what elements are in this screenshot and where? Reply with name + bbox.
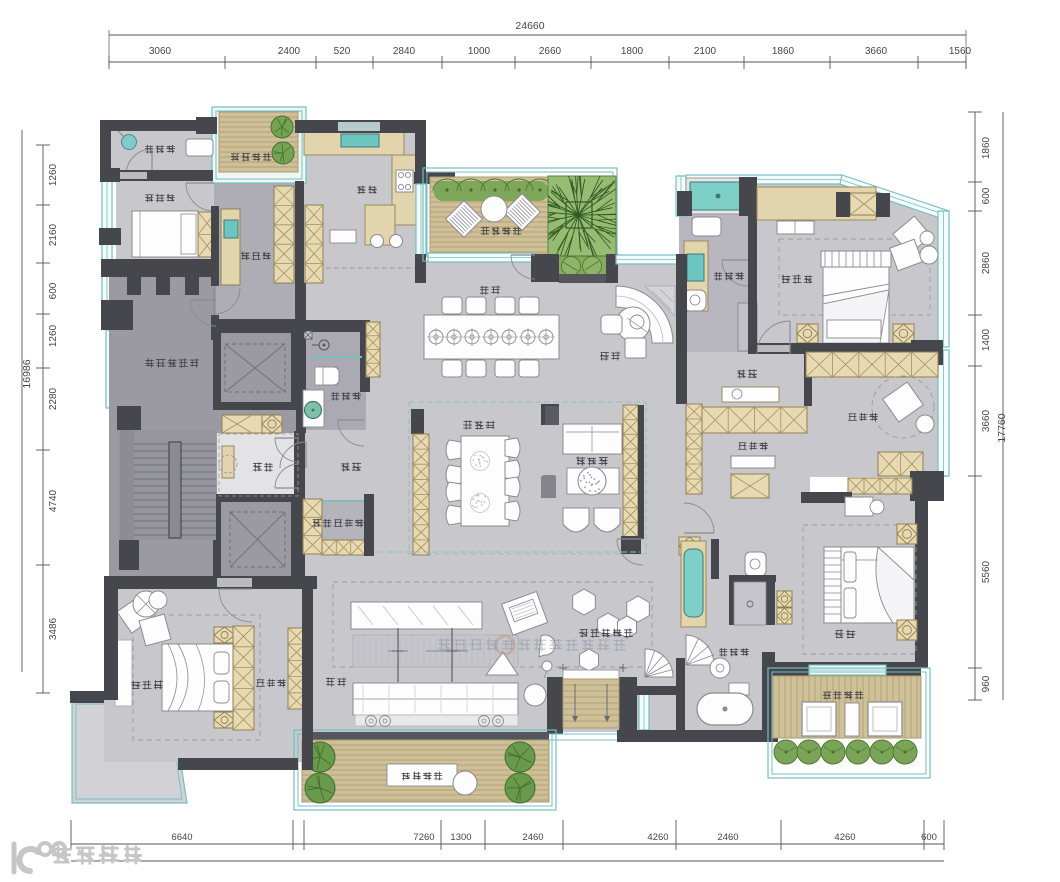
svg-text:7260: 7260 [413, 832, 434, 843]
svg-text:4740: 4740 [48, 489, 59, 512]
svg-text:600: 600 [48, 282, 59, 299]
svg-text:4260: 4260 [647, 832, 668, 843]
svg-text:3660: 3660 [865, 46, 888, 57]
svg-text:1260: 1260 [48, 163, 59, 186]
svg-text:3660: 3660 [981, 409, 992, 432]
svg-text:3486: 3486 [48, 617, 59, 640]
svg-text:600: 600 [981, 187, 992, 204]
svg-text:960: 960 [981, 675, 992, 692]
svg-text:600: 600 [921, 832, 937, 843]
svg-text:1400: 1400 [981, 328, 992, 351]
svg-text:5560: 5560 [981, 560, 992, 583]
svg-text:1300: 1300 [450, 832, 471, 843]
svg-text:2160: 2160 [48, 223, 59, 246]
svg-text:2400: 2400 [278, 46, 301, 57]
svg-text:1560: 1560 [949, 46, 972, 57]
svg-text:2660: 2660 [539, 46, 562, 57]
svg-text:1800: 1800 [621, 46, 644, 57]
svg-text:24660: 24660 [515, 20, 544, 32]
svg-text:2280: 2280 [48, 387, 59, 410]
svg-text:1260: 1260 [48, 324, 59, 347]
svg-text:1860: 1860 [772, 46, 795, 57]
svg-text:16986: 16986 [21, 359, 33, 388]
svg-text:6640: 6640 [171, 832, 192, 843]
svg-text:520: 520 [334, 46, 351, 57]
svg-text:2100: 2100 [694, 46, 717, 57]
svg-text:17760: 17760 [996, 413, 1008, 442]
svg-text:2840: 2840 [393, 46, 416, 57]
svg-text:2860: 2860 [981, 251, 992, 274]
svg-text:4260: 4260 [834, 832, 855, 843]
svg-text:2460: 2460 [522, 832, 543, 843]
svg-text:1000: 1000 [468, 46, 491, 57]
svg-text:2460: 2460 [717, 832, 738, 843]
svg-text:3060: 3060 [149, 46, 172, 57]
svg-text:1860: 1860 [981, 136, 992, 159]
